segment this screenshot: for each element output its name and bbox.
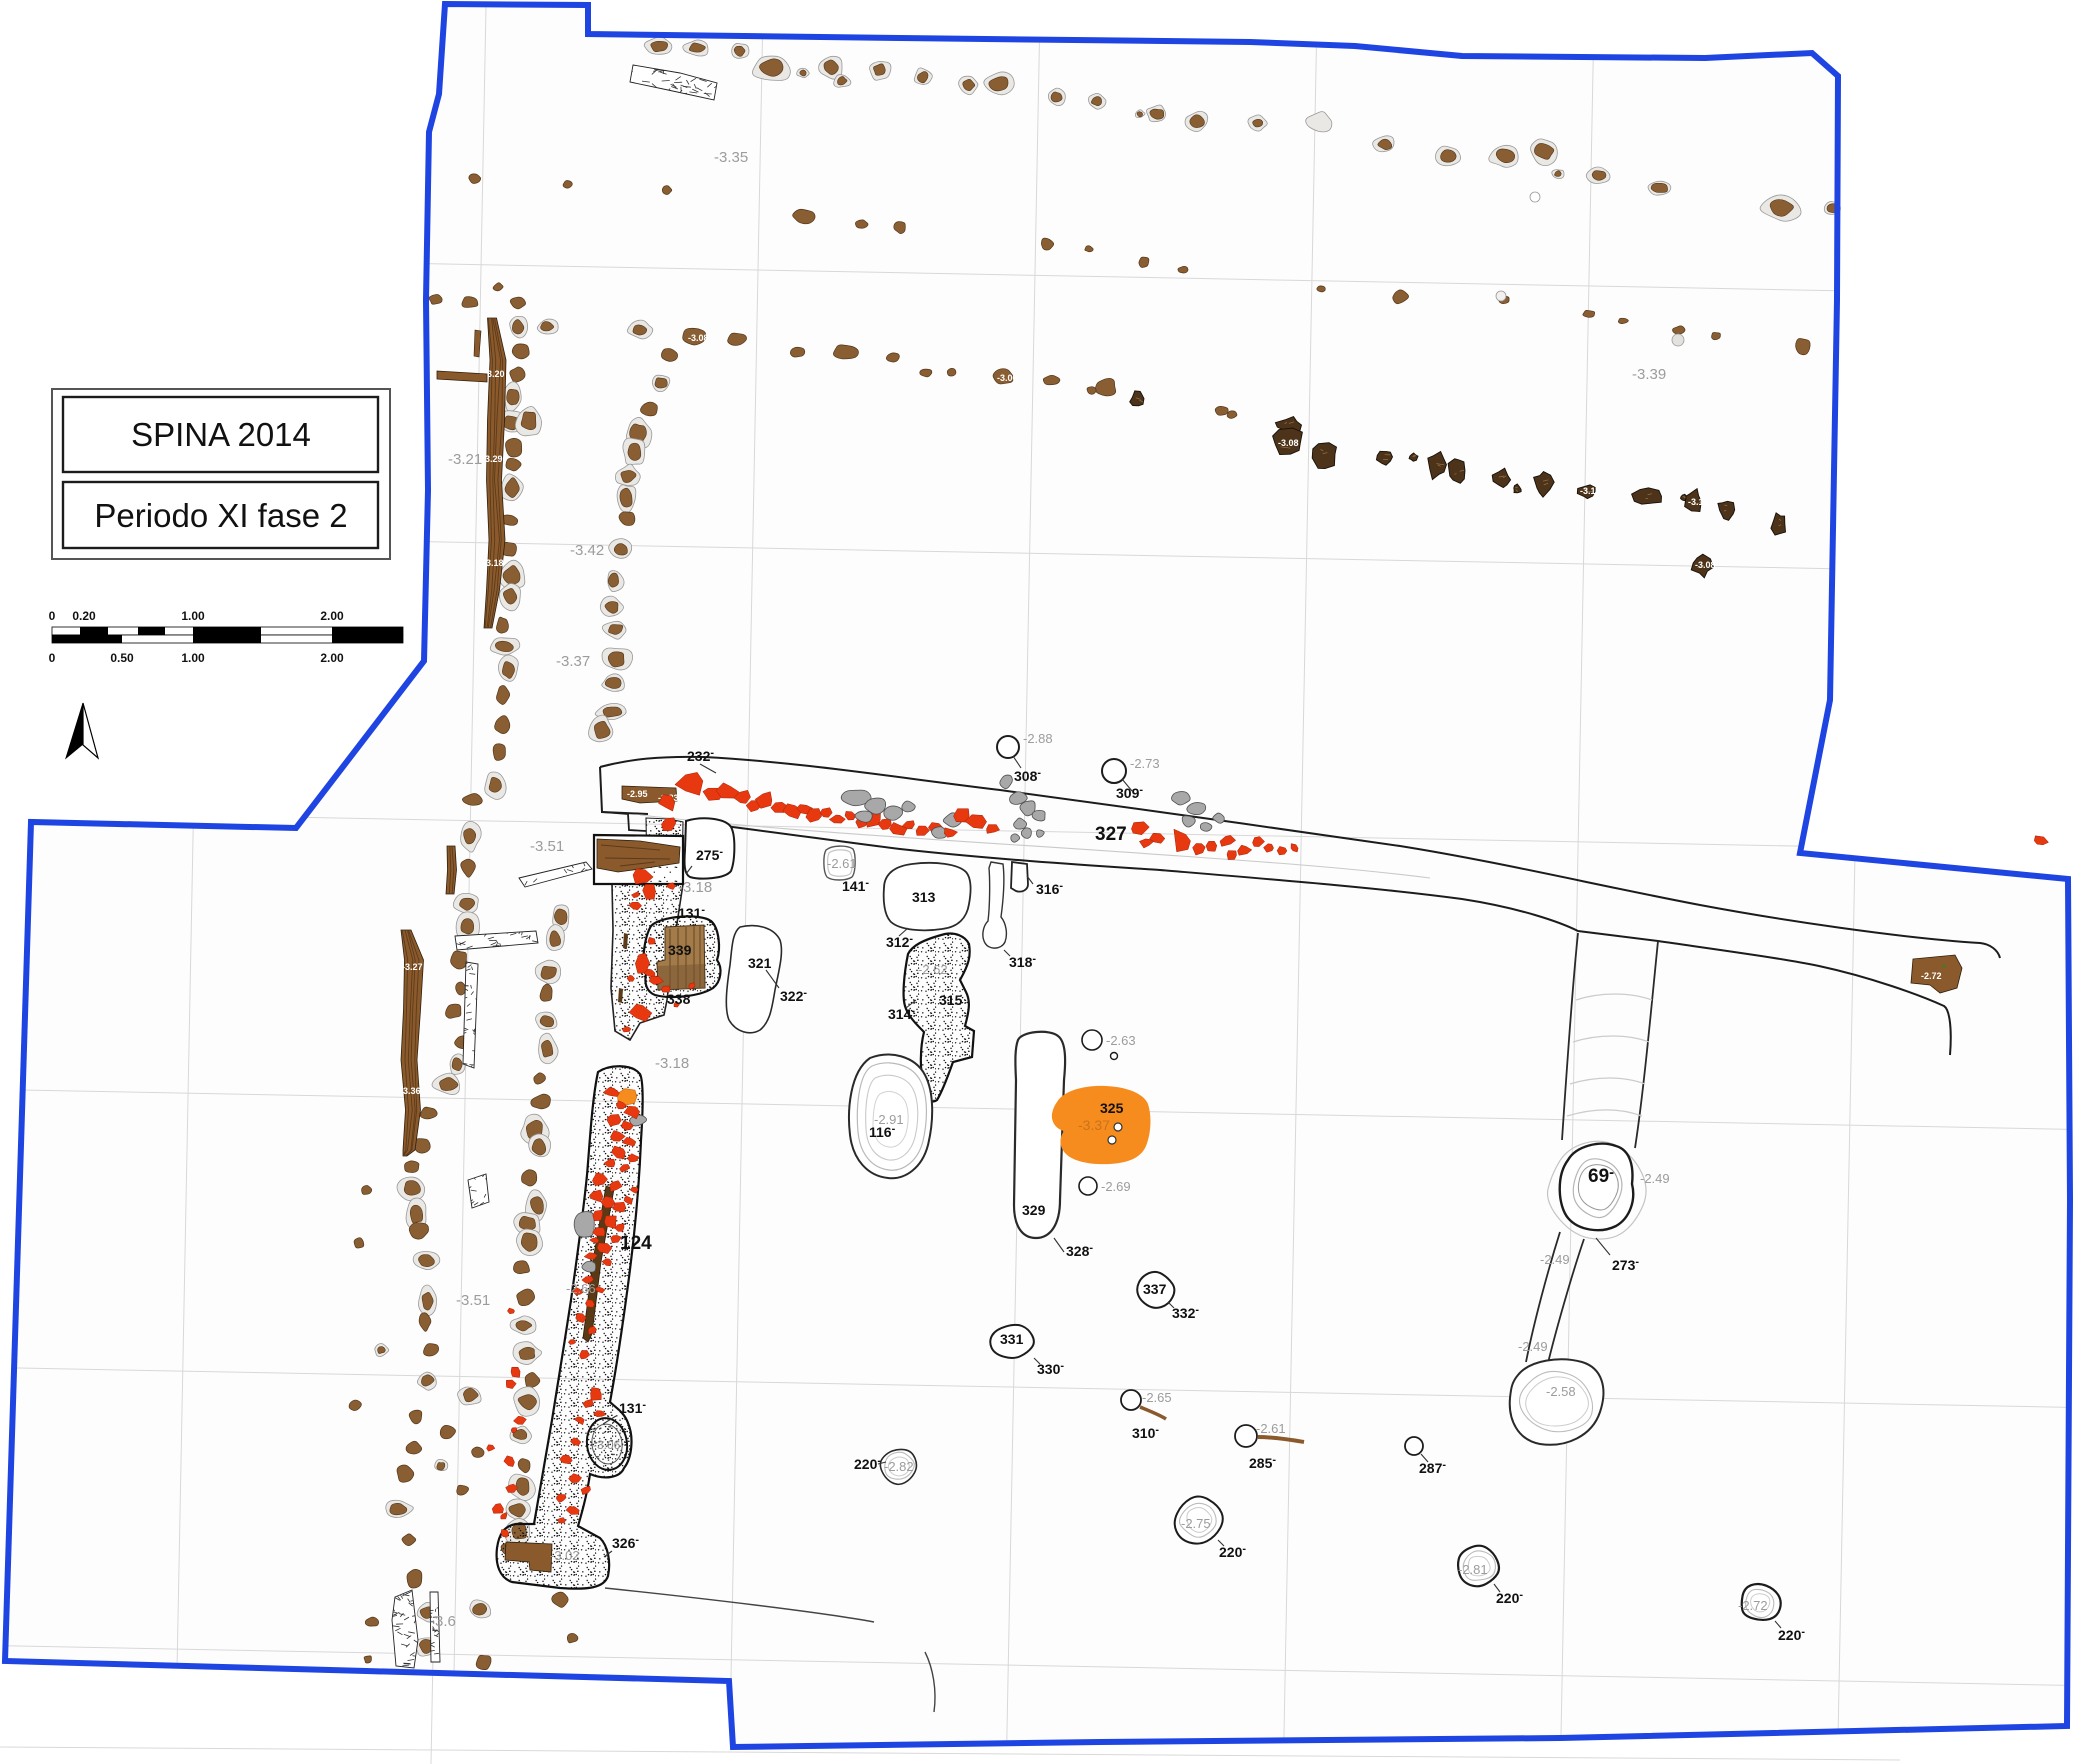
svg-text:-3.36: -3.36 bbox=[400, 1086, 421, 1096]
svg-text:327: 327 bbox=[1095, 824, 1127, 845]
svg-text:-3.06: -3.06 bbox=[593, 1438, 621, 1452]
svg-text:-2.49: -2.49 bbox=[1540, 1252, 1570, 1267]
svg-text:-2.95: -2.95 bbox=[627, 789, 648, 799]
svg-text:-2.72: -2.72 bbox=[1921, 971, 1942, 981]
svg-text:-3.08: -3.08 bbox=[1695, 560, 1716, 570]
svg-text:-3.51: -3.51 bbox=[456, 1292, 490, 1309]
svg-text:-2.65: -2.65 bbox=[1142, 1390, 1172, 1405]
svg-text:-3.21: -3.21 bbox=[448, 451, 482, 468]
svg-text:322-: 322- bbox=[780, 987, 807, 1004]
svg-text:-2.49: -2.49 bbox=[1518, 1339, 1548, 1354]
svg-text:2.00: 2.00 bbox=[320, 651, 344, 665]
svg-text:-3.37: -3.37 bbox=[556, 653, 590, 670]
svg-text:310-: 310- bbox=[1132, 1424, 1159, 1441]
svg-text:287-: 287- bbox=[1419, 1459, 1446, 1476]
svg-text:309-: 309- bbox=[1116, 784, 1143, 801]
svg-text:-2.72: -2.72 bbox=[1738, 1598, 1768, 1613]
svg-text:0: 0 bbox=[49, 651, 56, 665]
svg-text:-2.63: -2.63 bbox=[1106, 1033, 1136, 1048]
svg-text:131-: 131- bbox=[619, 1399, 646, 1416]
svg-text:141-: 141- bbox=[842, 877, 869, 894]
svg-text:329: 329 bbox=[1022, 1202, 1046, 1218]
svg-text:-3.6: -3.6 bbox=[430, 1613, 456, 1630]
svg-text:SPINA 2014: SPINA 2014 bbox=[131, 416, 311, 453]
svg-text:325: 325 bbox=[1100, 1100, 1124, 1116]
svg-text:-3.08: -3.08 bbox=[688, 333, 709, 343]
svg-text:-3.29: -3.29 bbox=[482, 454, 503, 464]
svg-text:-3.35: -3.35 bbox=[714, 149, 748, 166]
svg-text:220-: 220- bbox=[1778, 1626, 1805, 1643]
svg-text:321: 321 bbox=[748, 955, 772, 971]
svg-text:124: 124 bbox=[620, 1233, 652, 1254]
svg-text:337: 337 bbox=[1143, 1281, 1167, 1297]
svg-text:220-: 220- bbox=[1219, 1543, 1246, 1560]
svg-text:332-: 332- bbox=[1172, 1304, 1199, 1321]
svg-text:131-: 131- bbox=[678, 904, 705, 921]
svg-text:0: 0 bbox=[49, 609, 56, 623]
svg-text:-3.37: -3.37 bbox=[1078, 1117, 1110, 1133]
svg-text:-2.81: -2.81 bbox=[1458, 1562, 1488, 1577]
svg-text:312-: 312- bbox=[886, 933, 913, 950]
svg-text:1.00: 1.00 bbox=[181, 609, 205, 623]
svg-text:220-: 220- bbox=[1496, 1589, 1523, 1606]
svg-text:-2.58: -2.58 bbox=[1546, 1384, 1576, 1399]
svg-text:232-: 232- bbox=[687, 747, 714, 764]
svg-text:-2.91: -2.91 bbox=[874, 1112, 904, 1127]
svg-text:-2.88: -2.88 bbox=[1023, 731, 1053, 746]
svg-text:-3.15: -3.15 bbox=[1580, 486, 1601, 496]
svg-text:1.00: 1.00 bbox=[181, 651, 205, 665]
svg-text:-3.27: -3.27 bbox=[402, 962, 423, 972]
svg-text:-2.49: -2.49 bbox=[1640, 1171, 1670, 1186]
svg-text:313: 313 bbox=[912, 889, 936, 905]
svg-text:-3.08: -3.08 bbox=[1278, 438, 1299, 448]
svg-text:331: 331 bbox=[1000, 1331, 1024, 1347]
svg-text:-3.51: -3.51 bbox=[530, 838, 564, 855]
svg-text:Periodo XI fase 2: Periodo XI fase 2 bbox=[94, 497, 347, 534]
svg-text:285-: 285- bbox=[1249, 1454, 1276, 1471]
svg-text:315: 315 bbox=[939, 992, 963, 1008]
svg-text:-2.61: -2.61 bbox=[827, 856, 857, 871]
svg-text:-2.82: -2.82 bbox=[884, 1459, 914, 1474]
svg-text:338: 338 bbox=[667, 991, 691, 1007]
svg-text:-3.39: -3.39 bbox=[1632, 366, 1666, 383]
svg-text:275-: 275- bbox=[696, 846, 723, 863]
svg-text:339: 339 bbox=[668, 942, 692, 958]
svg-text:0.50: 0.50 bbox=[110, 651, 134, 665]
svg-text:0.20: 0.20 bbox=[72, 609, 96, 623]
svg-text:-3.42: -3.42 bbox=[570, 542, 604, 559]
svg-text:308-: 308- bbox=[1014, 767, 1041, 784]
svg-text:-3.18: -3.18 bbox=[678, 879, 712, 896]
svg-text:2.00: 2.00 bbox=[320, 609, 344, 623]
svg-text:-3.12: -3.12 bbox=[1688, 497, 1709, 507]
svg-text:-3.02: -3.02 bbox=[550, 1548, 580, 1563]
svg-text:273-: 273- bbox=[1612, 1256, 1639, 1273]
svg-text:-2.61: -2.61 bbox=[1256, 1421, 1286, 1436]
svg-text:-3.18: -3.18 bbox=[483, 558, 504, 568]
svg-text:-3.18: -3.18 bbox=[655, 1055, 689, 1072]
svg-text:328-: 328- bbox=[1066, 1242, 1093, 1259]
svg-text:-2.75: -2.75 bbox=[1181, 1516, 1211, 1531]
svg-text:316-: 316- bbox=[1036, 880, 1063, 897]
svg-text:-2.69: -2.69 bbox=[1101, 1179, 1131, 1194]
svg-text:330-: 330- bbox=[1037, 1360, 1064, 1377]
svg-text:220-: 220- bbox=[854, 1455, 881, 1472]
svg-text:314-: 314- bbox=[888, 1005, 915, 1022]
svg-text:326-: 326- bbox=[612, 1534, 639, 1551]
svg-text:318-: 318- bbox=[1009, 953, 1036, 970]
svg-text:-3.06: -3.06 bbox=[997, 373, 1018, 383]
svg-text:-2.66: -2.66 bbox=[566, 1281, 596, 1296]
svg-text:-2.62: -2.62 bbox=[918, 962, 948, 977]
svg-text:-2.73: -2.73 bbox=[1130, 756, 1160, 771]
